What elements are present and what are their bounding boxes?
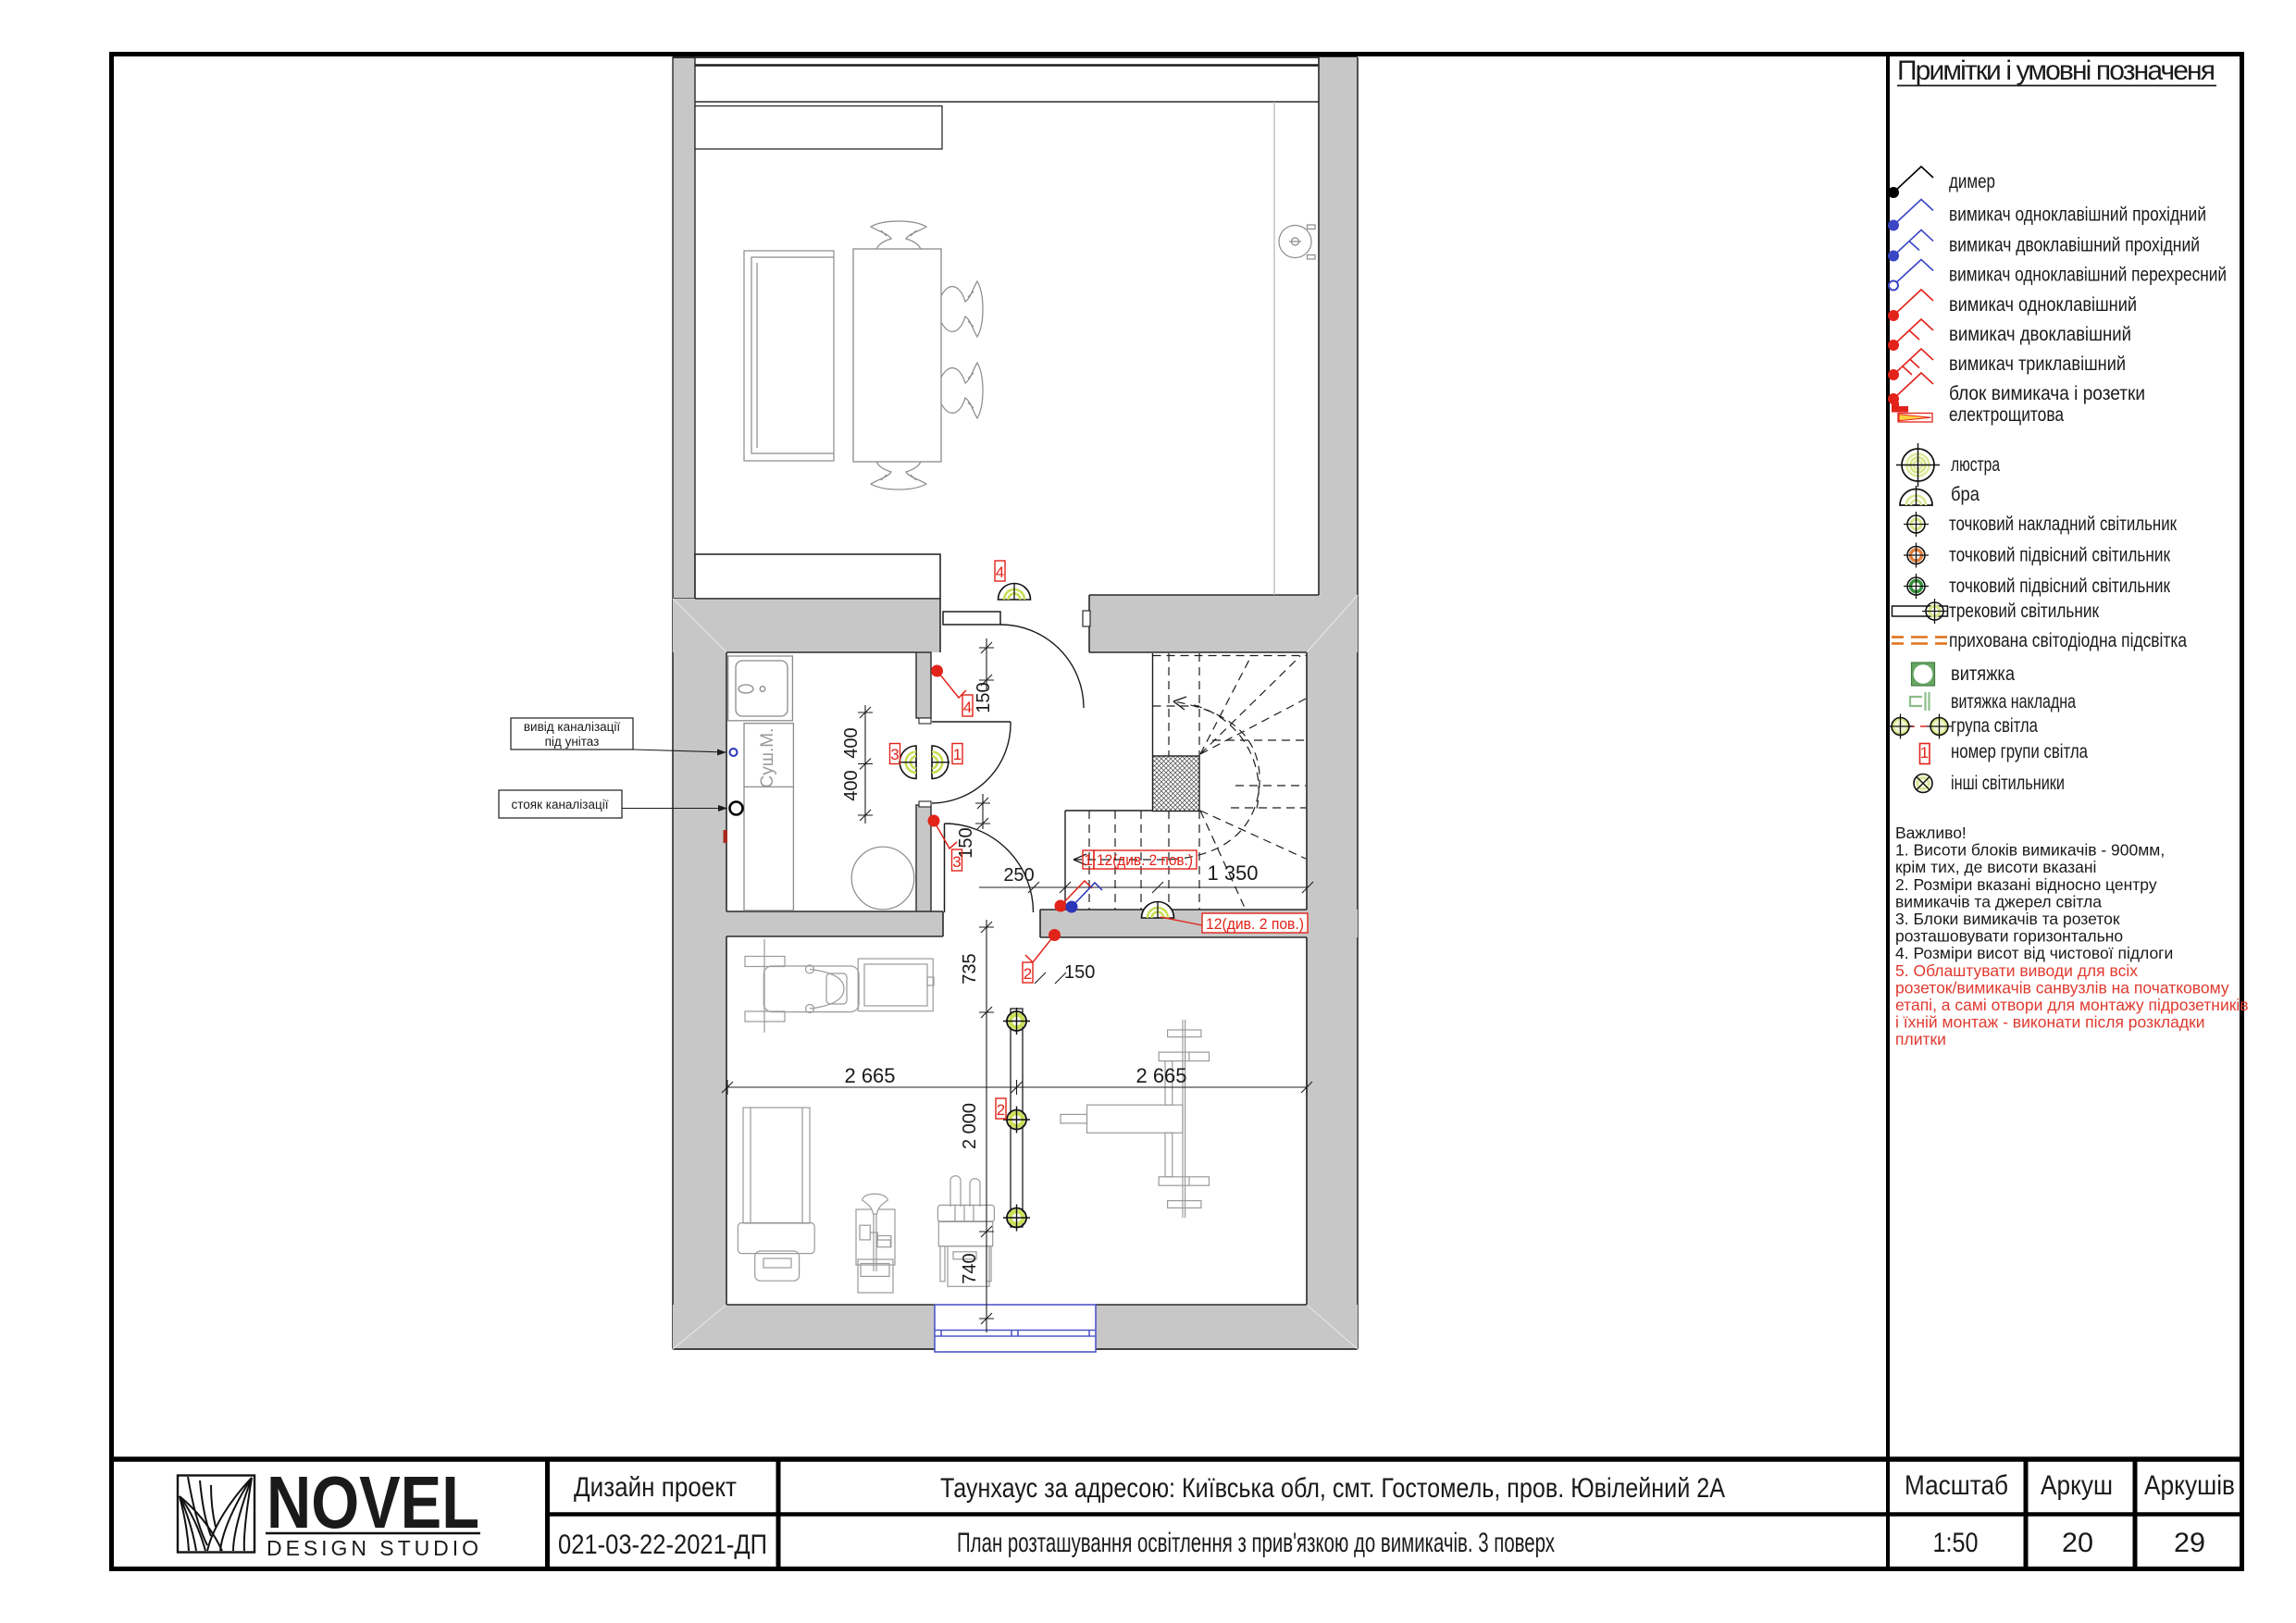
svg-text:Суш.М.: Суш.М. <box>758 728 777 788</box>
svg-text:плитки: плитки <box>1895 1030 1946 1048</box>
svg-text:трековий світильник: трековий світильник <box>1949 601 2100 622</box>
svg-text:021-03-22-2021-ДП: 021-03-22-2021-ДП <box>558 1530 767 1560</box>
svg-text:1:50: 1:50 <box>1933 1528 1979 1558</box>
svg-text:витяжка накладна: витяжка накладна <box>1951 691 2076 712</box>
svg-text:Аркушів: Аркушів <box>2144 1470 2235 1501</box>
svg-text:2 665: 2 665 <box>1136 1064 1186 1087</box>
svg-text:номер групи світла: номер групи світла <box>1951 741 2088 762</box>
svg-text:блок вимикача і розетки: блок вимикача і розетки <box>1949 383 2145 404</box>
svg-text:2 665: 2 665 <box>844 1064 895 1087</box>
svg-text:димер: димер <box>1949 171 1995 192</box>
svg-text:вимикач одноклавішний перехрес: вимикач одноклавішний перехресний <box>1949 265 2227 286</box>
svg-text:вимикач триклавішний: вимикач триклавішний <box>1949 353 2126 375</box>
svg-text:вимикач одноклавішний прохідни: вимикач одноклавішний прохідний <box>1949 204 2206 226</box>
svg-text:люстра: люстра <box>1951 454 2000 476</box>
svg-text:вимикач одноклавішний: вимикач одноклавішний <box>1949 294 2137 316</box>
svg-text:2: 2 <box>1024 965 1032 983</box>
svg-text:12(див. 2 пов.): 12(див. 2 пов.) <box>1097 851 1193 869</box>
svg-text:250: 250 <box>1003 865 1034 886</box>
svg-text:крім тих, де висоти вказані: крім тих, де висоти вказані <box>1895 858 2096 876</box>
svg-text:бра: бра <box>1951 484 1980 505</box>
svg-text:DESIGN STUDIO: DESIGN STUDIO <box>267 1536 478 1560</box>
svg-text:NOVEL: NOVEL <box>267 1461 479 1543</box>
svg-text:і їхній монтаж - виконати післ: і їхній монтаж - виконати після розкладк… <box>1895 1013 2205 1032</box>
svg-text:вимикач двоклавішний: вимикач двоклавішний <box>1949 324 2131 345</box>
svg-text:вивід каналізації: вивід каналізації <box>524 720 620 734</box>
svg-text:розеток/вимикачів санвузлів на: розеток/вимикачів санвузлів на початково… <box>1895 978 2229 997</box>
svg-text:Дизайн проект: Дизайн проект <box>574 1472 737 1503</box>
svg-text:розташовувати горизонтально: розташовувати горизонтально <box>1895 927 2123 946</box>
svg-text:1 350: 1 350 <box>1207 861 1258 885</box>
svg-text:1: 1 <box>953 746 962 763</box>
svg-text:20: 20 <box>2062 1528 2093 1558</box>
svg-text:2 000: 2 000 <box>960 1103 980 1149</box>
svg-text:1: 1 <box>1084 851 1092 869</box>
svg-text:735: 735 <box>960 953 980 984</box>
svg-text:3: 3 <box>952 853 961 871</box>
svg-text:стояк каналізації: стояк каналізації <box>512 798 609 811</box>
svg-text:5. Облаштувати виводи для всіх: 5. Облаштувати виводи для всіх <box>1895 961 2138 980</box>
svg-text:Таунхаус за адресою: Київська: Таунхаус за адресою: Київська обл, смт. … <box>940 1473 1725 1504</box>
svg-text:150: 150 <box>1064 962 1095 983</box>
svg-text:витяжка: витяжка <box>1951 663 2015 685</box>
svg-text:150: 150 <box>974 682 994 712</box>
svg-text:під унітаз: під унітаз <box>545 735 600 749</box>
svg-text:400: 400 <box>841 770 862 800</box>
svg-text:вимикачів та джерел світла: вимикачів та джерел світла <box>1895 892 2102 911</box>
svg-text:400: 400 <box>841 727 862 758</box>
svg-text:точковий підвісний світильник: точковий підвісний світильник <box>1949 545 2171 566</box>
svg-text:3. Блоки вимикачів та розеток: 3. Блоки вимикачів та розеток <box>1895 910 2120 928</box>
svg-text:Важливо!: Важливо! <box>1895 824 1967 842</box>
svg-text:інші світильники: інші світильники <box>1951 773 2065 794</box>
svg-text:План розташування освітлення з: План розташування освітлення з прив'язко… <box>957 1528 1555 1558</box>
svg-text:Аркуш: Аркуш <box>2041 1470 2113 1501</box>
svg-text:точковий підвісний світильник: точковий підвісний світильник <box>1949 576 2171 597</box>
svg-text:Масштаб: Масштаб <box>1905 1470 2008 1501</box>
svg-text:електрощитова: електрощитова <box>1949 404 2064 426</box>
svg-text:4: 4 <box>996 564 1004 581</box>
svg-text:1: 1 <box>1920 744 1929 762</box>
svg-text:2: 2 <box>997 1101 1005 1119</box>
svg-text:740: 740 <box>960 1253 980 1283</box>
svg-text:прихована світодіодна підсвітк: прихована світодіодна підсвітка <box>1949 630 2187 651</box>
svg-text:точковий накладний світильник: точковий накладний світильник <box>1949 514 2178 535</box>
svg-text:4: 4 <box>963 699 972 716</box>
svg-text:3: 3 <box>890 746 899 763</box>
svg-text:1. Висоти блоків вимикачів - 9: 1. Висоти блоків вимикачів - 900мм, <box>1895 841 2165 860</box>
svg-text:29: 29 <box>2174 1528 2205 1558</box>
svg-text:12(див. 2 пов.): 12(див. 2 пов.) <box>1206 915 1304 933</box>
svg-text:група світла: група світла <box>1951 715 2038 737</box>
svg-text:етапі, а самі отвори для монта: етапі, а самі отвори для монтажу підрозе… <box>1895 996 2249 1014</box>
svg-text:2. Розміри вказані відносно це: 2. Розміри вказані відносно центру <box>1895 875 2157 894</box>
svg-text:4. Розміри висот від чистової: 4. Розміри висот від чистової підлоги <box>1895 944 2173 962</box>
svg-text:вимикач двоклавішний прохідний: вимикач двоклавішний прохідний <box>1949 235 2200 256</box>
svg-text:Примітки і умовні позначеня: Примітки і умовні позначеня <box>1897 56 2215 86</box>
